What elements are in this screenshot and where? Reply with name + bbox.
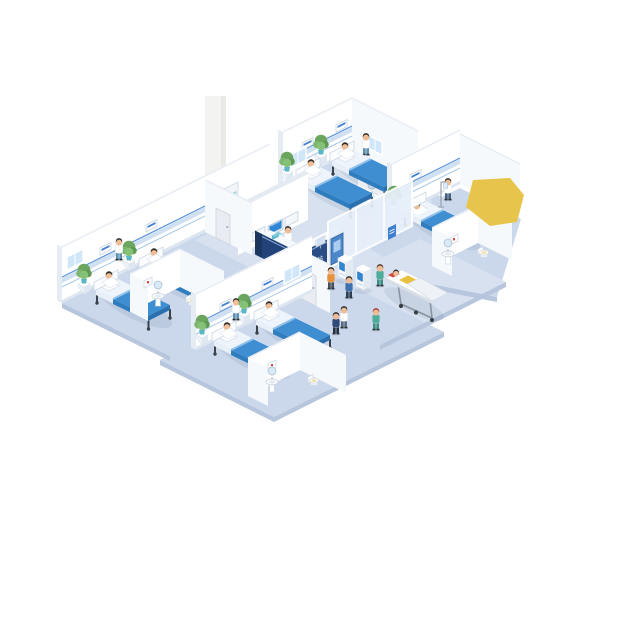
- hospital-isometric-illustration: 护士站: [0, 0, 640, 640]
- scene-canvas: 护士站: [0, 0, 640, 640]
- ward-a-door: [216, 208, 230, 245]
- selfservice-kiosk-2: [354, 265, 372, 295]
